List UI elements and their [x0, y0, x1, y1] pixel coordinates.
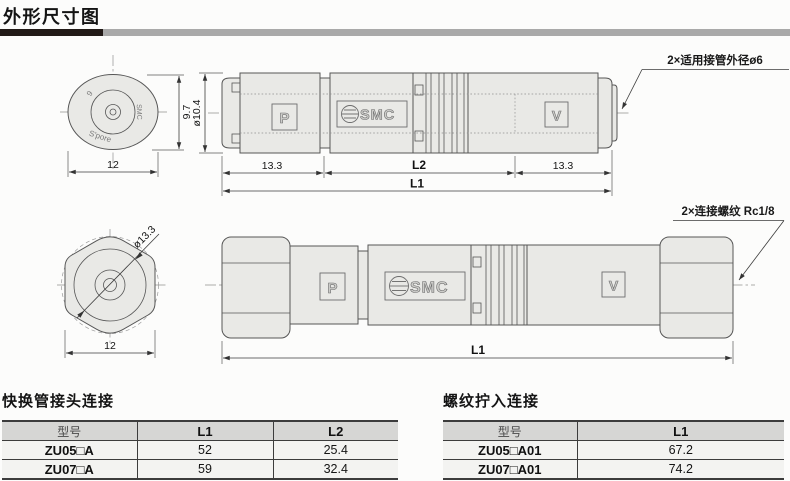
dim-label-body-dia: ø10.4: [191, 99, 203, 126]
catalog-page: 外形尺寸图 6 SMC S'pore 9.7: [0, 0, 790, 481]
note-thread: 2×连接螺纹 Rc1/8: [682, 204, 776, 218]
value-cell: 25.4: [273, 441, 398, 460]
value-cell: 67.2: [577, 441, 784, 460]
fitting-table: 型号 L1 L2 ZU05□A 52 25.4 ZU07□A 59 32.4: [2, 420, 398, 480]
value-cell: 32.4: [273, 460, 398, 480]
value-cell: 74.2: [577, 460, 784, 480]
right-hex-nut: [660, 237, 733, 338]
leader-line: [739, 221, 784, 281]
thread-table: 型号 L1 ZU05□A01 67.2 ZU07□A01 74.2: [443, 420, 784, 480]
table-row: ZU05□A 52 25.4: [2, 441, 398, 460]
dim-label-total: L1: [471, 343, 485, 357]
v-mark: V: [552, 108, 562, 124]
column-header-model: 型号: [443, 421, 577, 441]
cap-outline: [68, 75, 158, 150]
dim-label-total: L1: [410, 177, 424, 191]
smc-logo-text: SMC: [360, 108, 395, 124]
model-cell: ZU07□A: [2, 460, 137, 480]
dim-label-hex-dia: ø13.3: [131, 223, 159, 251]
right-cap-tip: [612, 85, 617, 141]
body-section-p: [290, 246, 358, 324]
dim-label-seg-mid: L2: [412, 158, 426, 172]
column-header-model: 型号: [2, 421, 137, 441]
table-row: ZU07□A 59 32.4: [2, 460, 398, 480]
leader-line: [622, 70, 642, 110]
column-header-l1: L1: [137, 421, 273, 441]
smc-logo-text: SMC: [410, 280, 449, 297]
model-cell: ZU05□A: [2, 441, 137, 460]
body-section-v: [527, 245, 660, 325]
bottom-end-view: ø13.3 12: [57, 223, 167, 358]
dim-label-seg-right: 13.3: [553, 160, 574, 172]
note-tube-od: 2×适用接管外径ø6: [667, 53, 763, 67]
body-neck: [358, 251, 368, 319]
body-neck: [320, 78, 330, 148]
thread-connection-section: 螺纹拧入连接 型号 L1 ZU05□A01 67.2 ZU07□A01 74.2: [443, 392, 784, 480]
v-mark: V: [609, 278, 619, 294]
value-cell: 59: [137, 460, 273, 480]
model-cell: ZU05□A01: [443, 441, 577, 460]
fitting-table-title: 快换管接头连接: [2, 392, 398, 412]
right-cap: [598, 78, 612, 148]
p-mark: P: [327, 280, 337, 297]
dim-label-hex-width: 12: [104, 340, 116, 352]
column-header-l1: L1: [577, 421, 784, 441]
model-cell: ZU07□A01: [443, 460, 577, 480]
left-hex-nut: [222, 237, 290, 338]
cap-brand-mark: SMC: [135, 104, 143, 120]
top-end-view: 6 SMC S'pore 9.7 12: [60, 55, 193, 177]
bottom-side-view: P SMC V L1 2×连接螺纹 Rc1/8: [205, 204, 784, 364]
table-row: ZU05□A01 67.2: [443, 441, 784, 460]
dim-label-seg-left: 13.3: [262, 160, 283, 172]
p-mark: P: [279, 110, 289, 127]
fitting-connection-section: 快换管接头连接 型号 L1 L2 ZU05□A 52 25.4 ZU07□A 5…: [2, 392, 398, 480]
left-cap: [222, 78, 240, 148]
column-header-l2: L2: [273, 421, 398, 441]
hex-nut-outline: [65, 237, 155, 333]
table-row: ZU07□A01 74.2: [443, 460, 784, 480]
top-side-view: P SMC V ø10.4 13.3 L2 13.3: [191, 53, 789, 196]
body-section-v: [468, 73, 598, 153]
thread-table-title: 螺纹拧入连接: [443, 392, 784, 412]
value-cell: 52: [137, 441, 273, 460]
dim-label-cap-width: 12: [107, 159, 119, 171]
